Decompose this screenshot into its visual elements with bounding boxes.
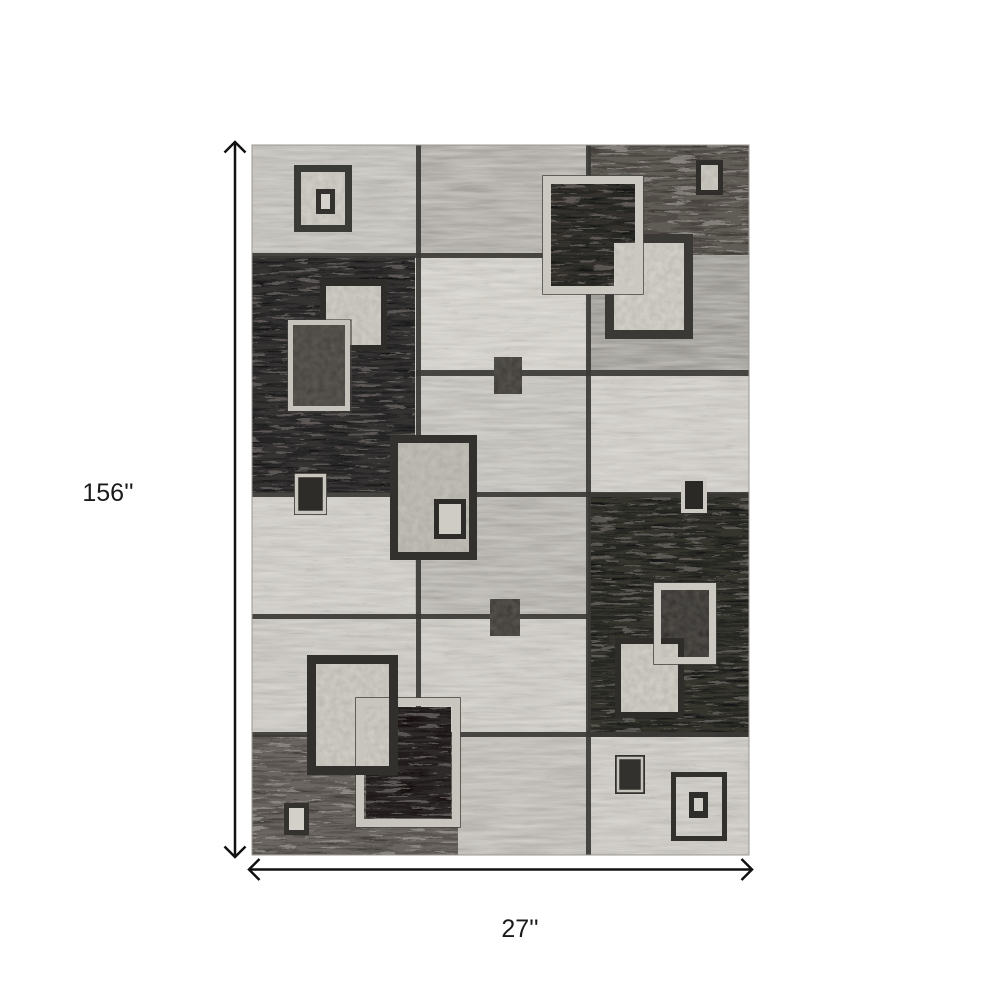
svg-text:156'': 156'' — [82, 479, 133, 507]
svg-text:27'': 27'' — [501, 915, 538, 943]
